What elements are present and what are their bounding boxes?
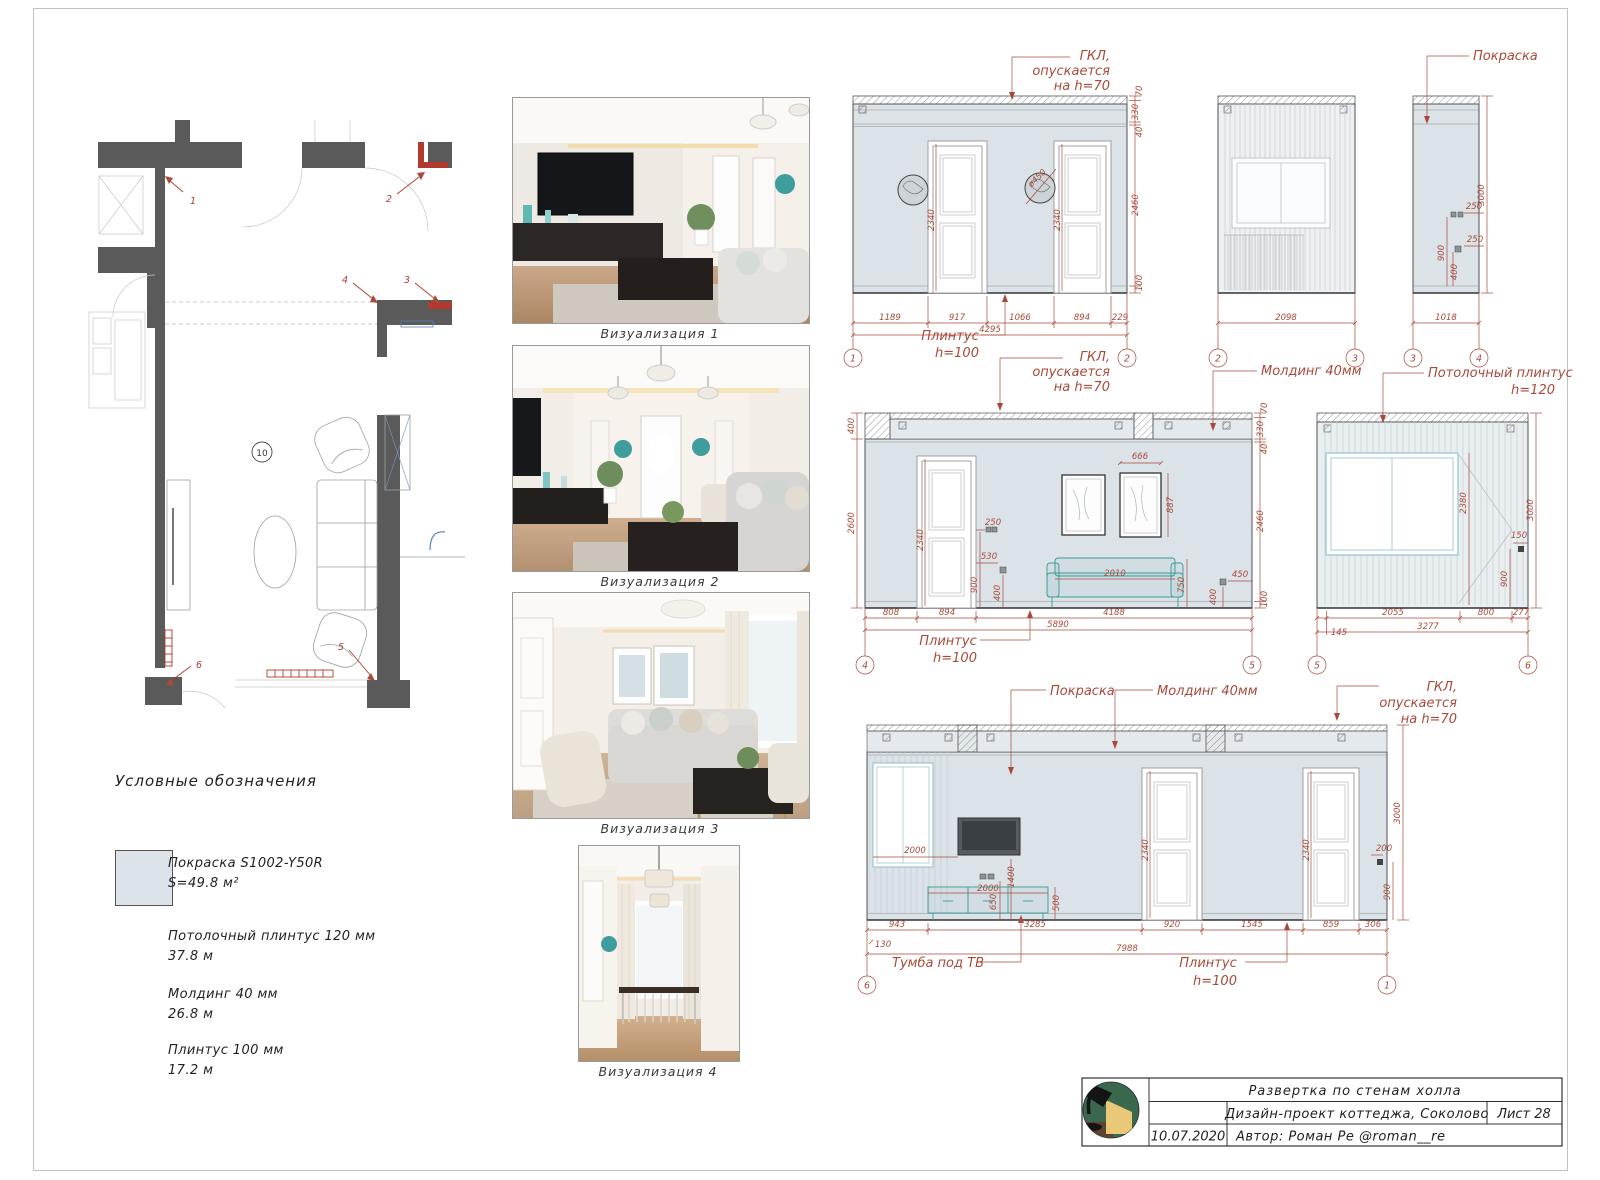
window: [1326, 453, 1458, 555]
plan-tv-console: [167, 480, 190, 610]
elevation-1-2: ø450 2340 2340 70 330 40 2460 100 1189 9…: [844, 49, 1145, 367]
plan-furniture: [165, 321, 465, 677]
wall-decor-circle: [601, 936, 617, 952]
svg-text:Плинтус: Плинтус: [919, 634, 976, 649]
svg-text:900: 900: [1383, 884, 1393, 900]
tv: [538, 153, 633, 215]
elevations-row-1: ø450 2340 2340 70 330 40 2460 100 1189 9…: [843, 20, 1600, 380]
elevation-5-6: 2380 150 900 3000 2055 800 277 145 3277: [1308, 366, 1573, 674]
svg-text:500: 500: [1052, 895, 1062, 911]
svg-text:10: 10: [256, 449, 268, 459]
wall-decor-circle: [614, 440, 632, 458]
svg-text:ГКЛ,: ГКЛ,: [1427, 680, 1457, 695]
svg-text:1189: 1189: [879, 313, 901, 323]
svg-text:894: 894: [939, 608, 955, 618]
svg-text:330: 330: [1256, 421, 1266, 437]
plan-marker-4: 4: [342, 275, 348, 286]
coffee-table: [618, 258, 713, 300]
svg-text:Покраска: Покраска: [1473, 49, 1538, 64]
svg-text:опускается: опускается: [1379, 696, 1457, 711]
svg-text:400: 400: [1450, 264, 1460, 280]
right-dim-chain: 3000: [1393, 725, 1409, 920]
svg-text:3000: 3000: [1393, 802, 1403, 824]
plan-marker-6: 6: [196, 660, 202, 671]
socket: [1518, 546, 1524, 552]
plan-marker-2: 2: [386, 194, 392, 205]
pendant-lamp: [645, 870, 673, 887]
drawing-sheet: { "colors": {"accent":"#a84a3a","wall_fi…: [0, 0, 1600, 1180]
svg-text:40: 40: [1135, 127, 1145, 138]
legend-paint-swatch: [115, 850, 173, 906]
svg-text:800: 800: [1478, 608, 1494, 618]
render-3-caption: Визуализация 3: [512, 821, 808, 836]
svg-text:530: 530: [981, 552, 997, 562]
wall-decor-circle: [692, 438, 710, 456]
svg-text:894: 894: [1074, 313, 1090, 323]
svg-text:h=100: h=100: [1193, 974, 1237, 989]
render-2-caption: Визуализация 2: [512, 574, 808, 589]
beam-hatch: [958, 725, 977, 752]
svg-text:4188: 4188: [1103, 608, 1125, 618]
svg-text:859: 859: [1323, 920, 1339, 930]
svg-text:3285: 3285: [1024, 920, 1046, 930]
svg-text:1066: 1066: [1009, 313, 1031, 323]
bottom-dim-chain: 1018: [1411, 293, 1481, 328]
svg-text:943: 943: [889, 920, 905, 930]
tv-console: [513, 488, 608, 524]
svg-text:887: 887: [1166, 496, 1176, 513]
plan-walls: [98, 120, 452, 708]
legend-paint-item: Покраска S1002-Y50R S=49.8 м²: [168, 854, 323, 894]
legend-item-molding: Молдинг 40 мм 26.8 м: [168, 985, 278, 1025]
svg-text:2600: 2600: [847, 512, 857, 534]
svg-text:130: 130: [875, 940, 891, 950]
socket: [1000, 567, 1006, 573]
svg-text:ГКЛ,: ГКЛ,: [1080, 350, 1110, 365]
svg-text:70: 70: [1260, 403, 1270, 414]
socket: [1377, 859, 1383, 865]
wall-decor-plate: [898, 175, 928, 205]
legend-item-plinth: Плинтус 100 мм 17.2 м: [168, 1041, 284, 1081]
svg-text:Тумба под ТВ: Тумба под ТВ: [892, 956, 984, 971]
svg-text:100: 100: [1135, 275, 1145, 291]
plan-marker-5: 5: [338, 642, 344, 653]
svg-text:1545: 1545: [1241, 920, 1263, 930]
plan-marker-1: 1: [190, 196, 196, 207]
radiator-screen: [1224, 235, 1304, 290]
svg-text:на h=70: на h=70: [1054, 380, 1110, 395]
render-3-image: [512, 592, 810, 819]
annotation-gkl: ГКЛ, опускается на h=70: [1009, 49, 1110, 100]
svg-text:450: 450: [1232, 570, 1248, 580]
pendant-lamp: [650, 894, 669, 907]
svg-text:2010: 2010: [1104, 569, 1126, 579]
svg-text:3277: 3277: [1417, 622, 1439, 632]
elevation-2-3: 2098 2 3: [1209, 96, 1364, 367]
svg-text:Молдинг 40мм: Молдинг 40мм: [1157, 684, 1258, 699]
annotation-plinth: Плинтус h=100: [1179, 922, 1290, 989]
plan-radiators: [165, 630, 333, 677]
tv: [513, 398, 541, 476]
bottom-dim-chain: 1189 917 1066 894 229 4295: [851, 293, 1129, 340]
bottom-dim-chain: 2098: [1216, 293, 1357, 328]
svg-text:h=120: h=120: [1511, 383, 1555, 398]
title-block-date: 10.07.2020: [1151, 1130, 1225, 1145]
render-4-image: [578, 845, 740, 1062]
socket: [1220, 579, 1226, 585]
ceiling-hatch-band: [1218, 96, 1355, 104]
coffee-table: [628, 522, 738, 571]
svg-text:2340: 2340: [1141, 839, 1151, 861]
svg-text:опускается: опускается: [1032, 365, 1110, 380]
svg-text:900: 900: [1500, 571, 1510, 587]
floor-plan: 1 2 3 4 5 6 10: [85, 80, 465, 710]
elevation-4-5: 2340 666 887 2010 750: [847, 350, 1362, 674]
elevations-row-2: 2340 666 887 2010 750: [843, 345, 1600, 680]
bottom-dim-chain: 2055 800 277 145 3277: [1315, 608, 1530, 653]
svg-text:на h=70: на h=70: [1401, 712, 1457, 727]
plan-corner-marks: [418, 142, 452, 309]
plan-marker-3: 3: [404, 275, 410, 286]
legend-title: Условные обозначения: [115, 772, 445, 790]
svg-text:306: 306: [1365, 920, 1382, 930]
beam-hatch: [1206, 725, 1225, 752]
title-block-project: Дизайн-проект коттеджа, Соколово: [1224, 1107, 1489, 1122]
render-1-image: [512, 97, 810, 324]
svg-text:Плинтус: Плинтус: [921, 329, 978, 344]
svg-text:229: 229: [1112, 313, 1128, 323]
svg-text:3000: 3000: [1477, 184, 1487, 206]
elevation-3-4: 250 250 900 400 3000 1018 3 4: [1404, 49, 1538, 367]
title-block-sheet-number: Лист 28: [1496, 1107, 1551, 1122]
svg-text:100: 100: [1260, 591, 1270, 607]
legend-paint-area: S=49.8 м²: [168, 874, 323, 894]
right-dim-chain: 70 330 40 2460 100: [1129, 86, 1145, 293]
axis-bubble: 6: [858, 955, 876, 994]
ceiling-hatch-band: [1317, 413, 1528, 422]
armchair: [768, 743, 809, 803]
svg-text:Плинтус: Плинтус: [1179, 956, 1236, 971]
svg-text:920: 920: [1164, 920, 1180, 930]
svg-text:808: 808: [883, 608, 900, 618]
svg-text:900: 900: [970, 577, 980, 593]
plan-armchair-1: [310, 412, 374, 477]
svg-text:3000: 3000: [1526, 499, 1536, 521]
svg-text:2098: 2098: [1275, 313, 1297, 323]
svg-text:2340: 2340: [1302, 839, 1312, 861]
svg-text:666: 666: [1132, 452, 1149, 462]
svg-text:2000: 2000: [977, 884, 999, 894]
legend: Условные обозначения Покраска S1002-Y50R…: [115, 772, 445, 1102]
render-4-caption: Визуализация 4: [578, 1064, 738, 1079]
door: [1142, 768, 1202, 920]
svg-text:6: 6: [864, 981, 870, 992]
svg-text:900: 900: [1437, 245, 1447, 261]
tv-console: [513, 223, 663, 261]
svg-text:1018: 1018: [1435, 313, 1457, 323]
title-block: Развертка по стенам холла Дизайн-проект …: [1050, 1070, 1570, 1155]
render-1-caption: Визуализация 1: [512, 326, 808, 341]
svg-text:400: 400: [847, 418, 857, 434]
svg-text:400: 400: [1209, 589, 1219, 605]
axis-bubble: 1: [1378, 955, 1396, 994]
svg-text:2380: 2380: [1459, 492, 1469, 514]
plan-armchair-2: [309, 609, 370, 671]
svg-text:70: 70: [1135, 86, 1145, 97]
plan-oval-table: [254, 516, 296, 588]
svg-text:Молдинг 40мм: Молдинг 40мм: [1261, 364, 1362, 379]
svg-text:1400: 1400: [1007, 866, 1017, 888]
render-2-image: [512, 345, 810, 572]
svg-text:2340: 2340: [1053, 209, 1063, 231]
svg-text:ГКЛ,: ГКЛ,: [1080, 49, 1110, 64]
svg-text:опускается: опускается: [1032, 64, 1110, 79]
svg-text:650: 650: [989, 894, 999, 910]
svg-text:2460: 2460: [1131, 194, 1141, 216]
svg-text:400: 400: [993, 585, 1003, 601]
wall-decor-circle: [775, 174, 795, 194]
plan-dashed-lines: [165, 302, 377, 324]
svg-text:917: 917: [949, 313, 966, 323]
svg-text:2055: 2055: [1382, 608, 1404, 618]
svg-text:277: 277: [1513, 608, 1530, 618]
socket: [1455, 246, 1461, 252]
door: [583, 881, 603, 1001]
plan-room-badge: 10: [252, 442, 272, 462]
svg-text:2000: 2000: [904, 846, 926, 856]
svg-text:2340: 2340: [916, 529, 926, 551]
left-dim-chain: 400 2600: [847, 413, 863, 608]
svg-text:1: 1: [1384, 981, 1390, 992]
title-block-title: Развертка по стенам холла: [1248, 1084, 1461, 1099]
title-block-author: Автор: Роман Ре @roman__re: [1235, 1130, 1446, 1145]
svg-text:250: 250: [985, 518, 1001, 528]
svg-text:2340: 2340: [927, 209, 937, 231]
svg-text:7988: 7988: [1116, 944, 1138, 954]
annotation-gkl: ГКЛ, опускается на h=70: [997, 350, 1110, 411]
elevation-6-1: 2000 500 2000 1400 650 2340 23: [858, 680, 1457, 994]
svg-text:4295: 4295: [979, 325, 1001, 335]
legend-item-ceiling-plinth: Потолочный плинтус 120 мм 37.8 м: [168, 927, 375, 967]
svg-text:Покраска: Покраска: [1050, 684, 1115, 699]
wall-art: [1120, 473, 1161, 537]
svg-text:Потолочный плинтус: Потолочный плинтус: [1428, 366, 1573, 381]
plan-threshold: [235, 680, 367, 687]
plan-sofa: [317, 480, 377, 610]
ceiling-hatch-band: [1413, 96, 1479, 104]
annotation-tv-stand: Тумба под ТВ: [892, 915, 1024, 971]
svg-text:2460: 2460: [1256, 510, 1266, 532]
tv: [958, 818, 1020, 855]
svg-text:750: 750: [1177, 577, 1187, 593]
wall-art: [1062, 475, 1105, 535]
beam-hatch: [865, 413, 890, 439]
svg-text:330: 330: [1131, 104, 1141, 120]
legend-paint-name: Покраска S1002-Y50R: [168, 854, 323, 874]
elevations-row-3: 2000 500 2000 1400 650 2340 23: [843, 655, 1600, 1000]
annotation-gkl: ГКЛ, опускается на h=70: [1334, 680, 1457, 727]
ceiling-hatch-band: [853, 96, 1127, 104]
bottom-dim-chain: 943 3285 920 1545 859 306 130 7988: [865, 920, 1389, 956]
beam-hatch: [1134, 413, 1153, 439]
svg-text:250: 250: [1467, 235, 1483, 245]
svg-text:5890: 5890: [1047, 620, 1069, 630]
svg-text:на h=70: на h=70: [1054, 79, 1110, 94]
right-dim-chain: 70 330 40 2460 100: [1254, 403, 1270, 608]
svg-text:145: 145: [1331, 628, 1347, 638]
svg-text:40: 40: [1260, 444, 1270, 455]
svg-text:150: 150: [1511, 531, 1527, 541]
svg-text:200: 200: [1376, 844, 1392, 854]
